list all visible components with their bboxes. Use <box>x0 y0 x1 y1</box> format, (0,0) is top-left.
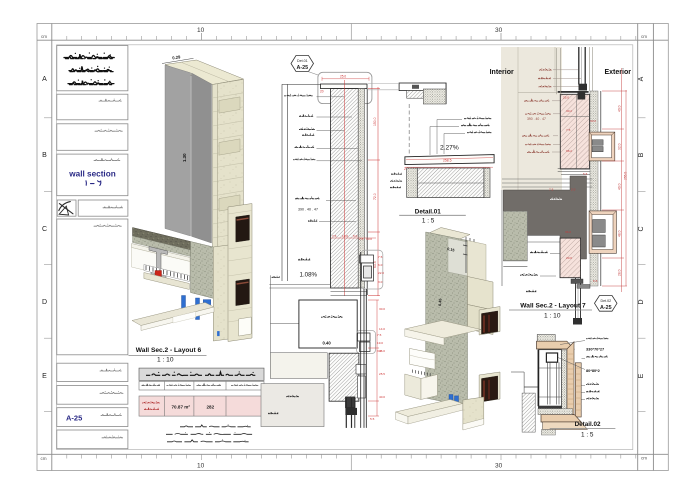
svg-text:0.45: 0.45 <box>438 298 443 306</box>
svg-text:20: 20 <box>320 90 324 94</box>
svg-text:330*70*27: 330*70*27 <box>586 347 604 352</box>
svg-text:1.08%: 1.08% <box>300 272 318 279</box>
svg-text:98.2: 98.2 <box>566 149 572 153</box>
svg-text:7.5: 7.5 <box>377 333 382 337</box>
svg-text:cm: cm <box>41 34 47 39</box>
svg-text:A: A <box>42 76 47 83</box>
svg-text:1.30: 1.30 <box>182 153 187 162</box>
svg-text:A-25: A-25 <box>296 65 308 71</box>
svg-text:0.40: 0.40 <box>323 341 332 346</box>
svg-text:B: B <box>42 152 47 159</box>
svg-text:70.87 m²: 70.87 m² <box>172 404 191 409</box>
svg-text:255.0: 255.0 <box>624 172 628 180</box>
svg-text:cm: cm <box>641 456 647 461</box>
svg-text:2.0: 2.0 <box>571 188 576 192</box>
svg-text:30.0: 30.0 <box>379 307 385 311</box>
svg-text:30: 30 <box>495 463 503 470</box>
svg-text:2.27%: 2.27% <box>440 145 459 152</box>
svg-text:7.5: 7.5 <box>378 255 383 259</box>
svg-text:30.2: 30.2 <box>566 109 572 113</box>
svg-text:Wall Sec.2 - Layout 6: Wall Sec.2 - Layout 6 <box>136 347 202 354</box>
svg-text:72.0: 72.0 <box>373 193 377 200</box>
svg-text:cm: cm <box>41 456 47 461</box>
svg-text:D: D <box>638 299 645 304</box>
svg-text:19.0: 19.0 <box>377 341 383 345</box>
svg-text:5.5: 5.5 <box>370 417 375 421</box>
svg-text:282: 282 <box>207 404 215 409</box>
svg-text:D: D <box>42 299 47 306</box>
svg-text:5.5: 5.5 <box>583 172 588 176</box>
svg-text:20.0: 20.0 <box>566 256 572 260</box>
svg-text:30: 30 <box>495 27 503 34</box>
svg-text:390 . 40 . 47: 390 . 40 . 47 <box>298 208 318 212</box>
svg-text:1 : 10: 1 : 10 <box>544 313 561 320</box>
svg-text:36.0: 36.0 <box>379 349 385 353</box>
svg-text:1 : 10: 1 : 10 <box>157 357 174 364</box>
svg-text:36.0: 36.0 <box>565 230 571 234</box>
svg-text:258.5: 258.5 <box>443 159 452 163</box>
svg-text:Exterior: Exterior <box>605 69 632 76</box>
svg-text:10.0: 10.0 <box>366 237 372 241</box>
svg-text:B: B <box>638 152 645 157</box>
svg-text:1 : 5: 1 : 5 <box>422 218 435 225</box>
svg-text:2.5: 2.5 <box>359 237 364 241</box>
svg-text:14.0: 14.0 <box>379 327 385 331</box>
svg-text:22.0: 22.0 <box>378 271 384 275</box>
svg-text:7.5: 7.5 <box>566 128 571 132</box>
svg-text:C: C <box>42 226 47 233</box>
svg-text:wall section: wall section <box>68 170 115 179</box>
svg-text:32.0: 32.0 <box>618 143 622 150</box>
svg-text:Detail.02: Detail.02 <box>575 421 601 428</box>
svg-text:30.0: 30.0 <box>590 119 596 123</box>
svg-text:5.0: 5.0 <box>353 234 358 238</box>
svg-text:3.0: 3.0 <box>378 280 383 284</box>
svg-text:10: 10 <box>197 463 205 470</box>
svg-text:Detail.01: Detail.01 <box>415 209 441 216</box>
svg-text:5.5: 5.5 <box>593 279 598 283</box>
svg-text:25.0: 25.0 <box>563 96 569 100</box>
svg-text:Det.02: Det.02 <box>601 299 612 303</box>
svg-text:C: C <box>638 226 645 231</box>
svg-text:10: 10 <box>197 27 205 34</box>
svg-text:6.0: 6.0 <box>378 263 383 267</box>
svg-text:7.5: 7.5 <box>332 234 337 238</box>
svg-text:40.0: 40.0 <box>618 105 622 112</box>
svg-text:1 : 5: 1 : 5 <box>581 432 594 439</box>
svg-text:Wall Sec.2 - Layout 7: Wall Sec.2 - Layout 7 <box>520 302 586 309</box>
svg-text:49.0: 49.0 <box>618 183 622 190</box>
svg-text:19.0: 19.0 <box>342 234 348 238</box>
svg-text:7.5: 7.5 <box>549 188 554 192</box>
svg-text:Det.01: Det.01 <box>297 59 308 63</box>
svg-text:150.0: 150.0 <box>373 117 377 126</box>
svg-text:A: A <box>638 76 645 81</box>
svg-text:28.0: 28.0 <box>618 269 622 276</box>
svg-text:cm: cm <box>641 34 647 39</box>
svg-text:80*80*2: 80*80*2 <box>586 368 601 373</box>
svg-text:25.0: 25.0 <box>340 75 346 79</box>
svg-text:25.5: 25.5 <box>379 372 385 376</box>
svg-text:390 . 40 . 47: 390 . 40 . 47 <box>527 117 546 121</box>
svg-text:E: E <box>42 373 47 380</box>
svg-text:E: E <box>638 373 645 378</box>
svg-text:48.0: 48.0 <box>618 230 622 237</box>
svg-text:A-25: A-25 <box>66 414 82 423</box>
svg-text:40.0: 40.0 <box>379 395 385 399</box>
svg-text:Interior: Interior <box>490 69 514 76</box>
svg-text:A-25: A-25 <box>600 305 612 311</box>
